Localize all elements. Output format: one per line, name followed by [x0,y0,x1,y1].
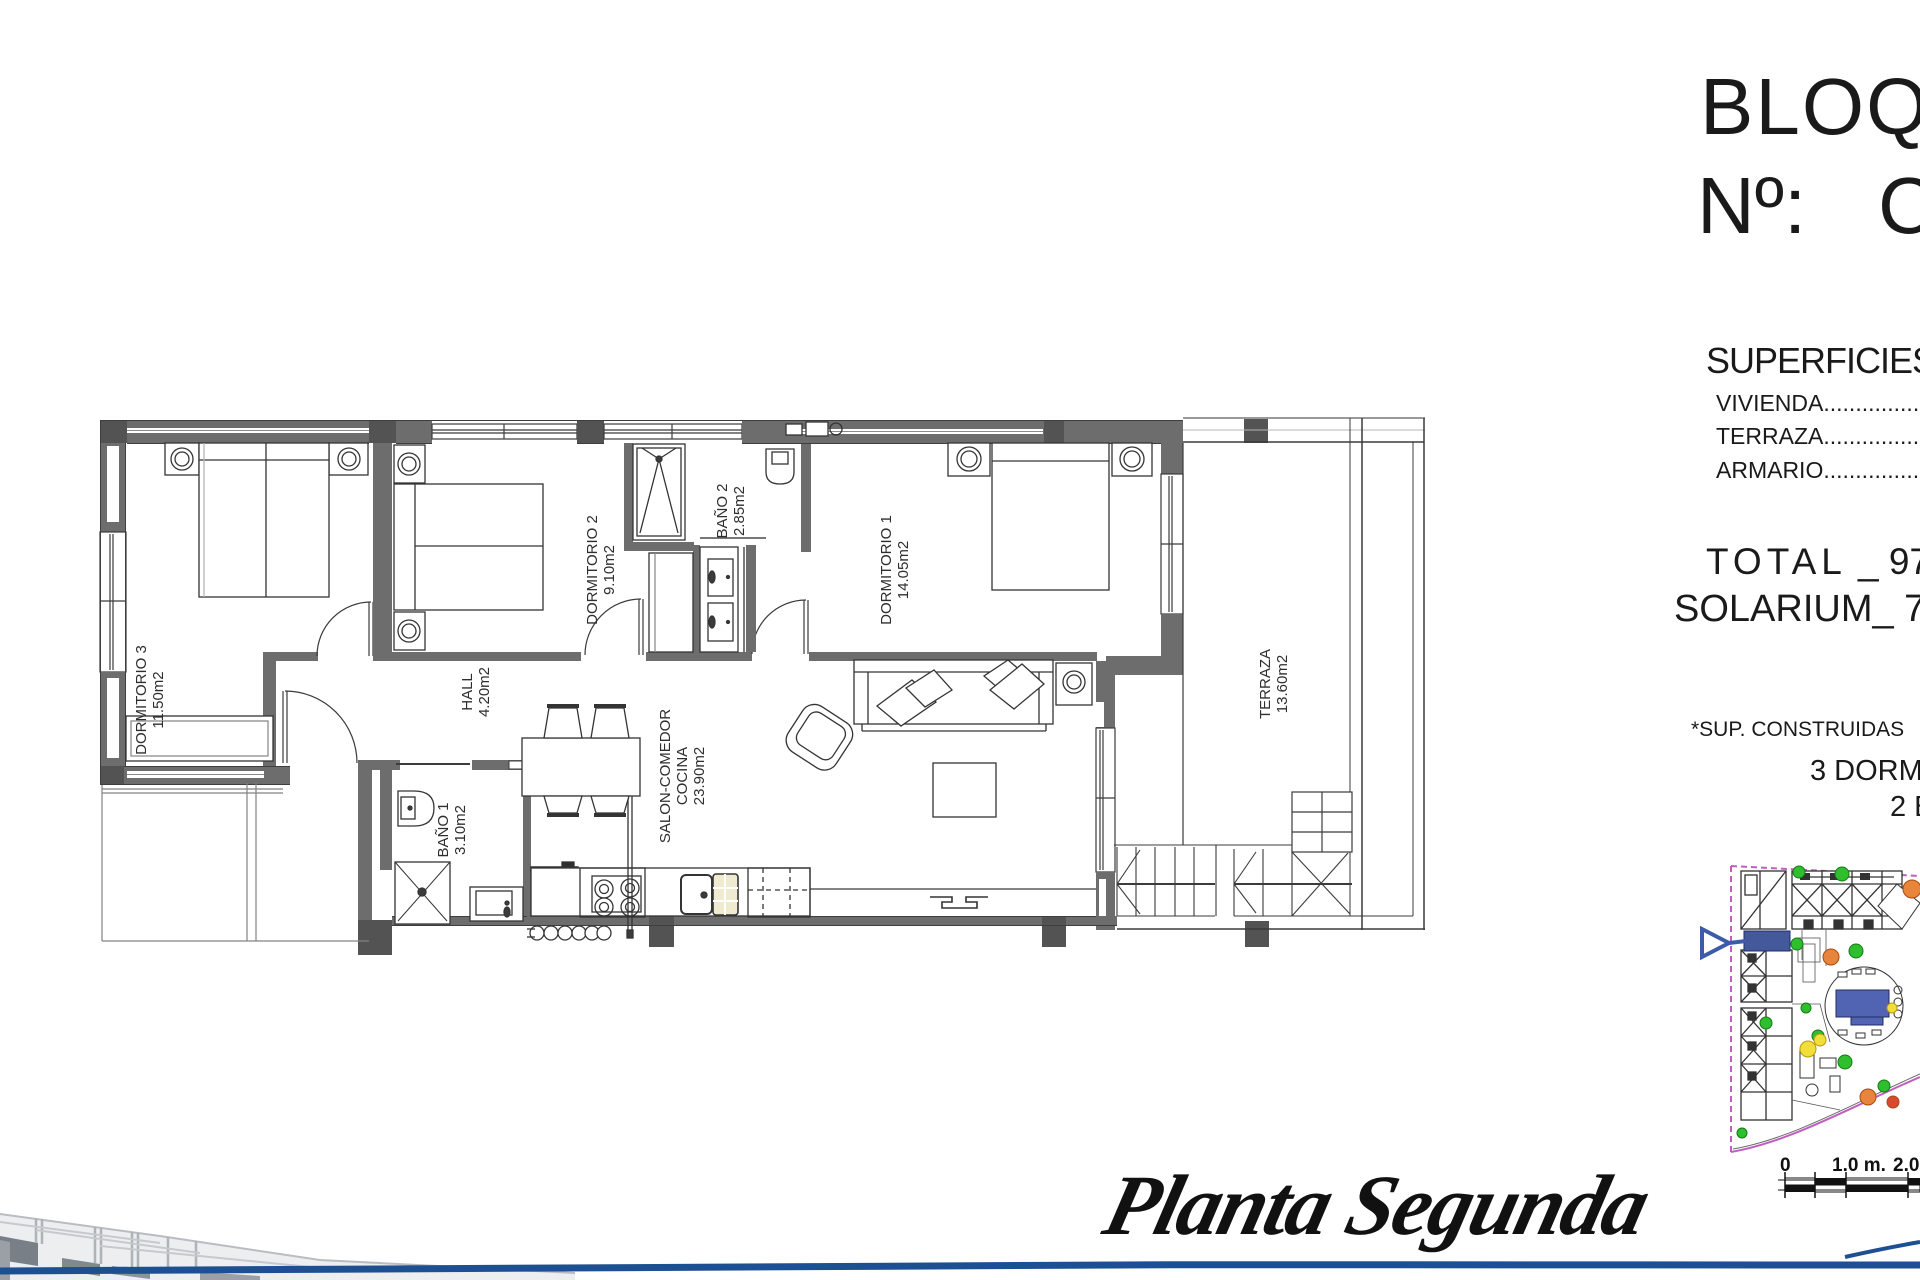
svg-text:3 DORMITO: 3 DORMITO [1810,755,1920,787]
svg-text:1.0 m.: 1.0 m. [1832,1155,1886,1176]
svg-text:C: C [1878,161,1920,250]
svg-text:3.10m2: 3.10m2 [452,805,469,855]
svg-text:Planta Segunda: Planta Segunda [1094,1157,1657,1253]
svg-text:BAÑO 2: BAÑO 2 [714,483,731,538]
svg-text:DORMITORIO 1: DORMITORIO 1 [878,515,895,625]
svg-text:HALL: HALL [459,673,476,711]
svg-text:VIVIENDA..................8: VIVIENDA..................8 [1716,390,1920,416]
svg-text:DORMITORIO 3: DORMITORIO 3 [133,645,150,755]
svg-text:23.90m2: 23.90m2 [691,747,708,805]
svg-text:9.10m2: 9.10m2 [601,545,618,595]
svg-text:SUPERFICIES: SUPERFICIES [1706,340,1920,381]
svg-text:SALON-COMEDOR: SALON-COMEDOR [657,709,674,843]
svg-text:BLOQU: BLOQU [1700,62,1920,151]
svg-text:14.05m2: 14.05m2 [895,541,912,599]
svg-text:SOLARIUM_ 7: SOLARIUM_ 7 [1674,588,1920,630]
svg-text:BAÑO 1: BAÑO 1 [435,802,452,857]
svg-text:2.0: 2.0 [1893,1155,1919,1176]
svg-text:TOTAL: TOTAL [1706,541,1847,582]
svg-text:TERRAZA.....................: TERRAZA..................... [1716,423,1920,449]
svg-text:11.50m2: 11.50m2 [150,671,167,728]
svg-text:ARMARIO.....................: ARMARIO..................... [1716,457,1920,483]
svg-text:DORMITORIO 2: DORMITORIO 2 [584,515,601,625]
svg-text:_ 97: _ 97 [1857,541,1920,582]
svg-text:Nº:: Nº: [1697,161,1806,250]
svg-text:TERRAZA: TERRAZA [1257,649,1274,719]
svg-text:2.85m2: 2.85m2 [731,486,748,536]
svg-text:*SUP. CONSTRUIDAS: *SUP. CONSTRUIDAS [1691,718,1904,741]
svg-text:13.60m2: 13.60m2 [1274,655,1291,713]
svg-text:2 BA: 2 BA [1890,791,1920,823]
svg-text:COCINA: COCINA [674,747,691,805]
svg-text:4.20m2: 4.20m2 [476,667,493,717]
